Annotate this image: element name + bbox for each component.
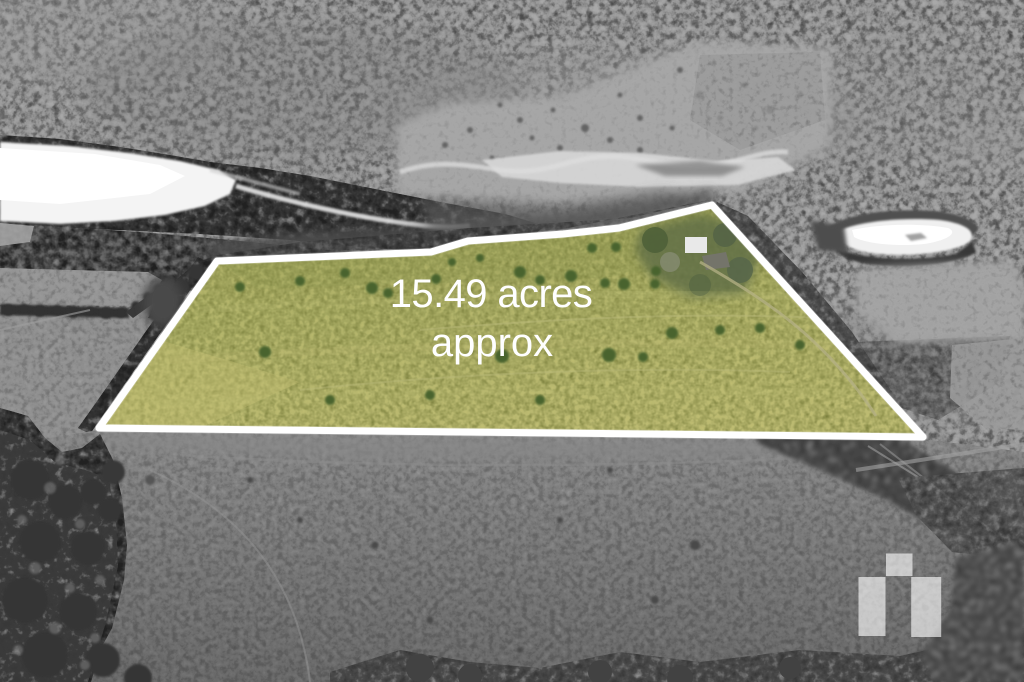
svg-text:15.49 acres: 15.49 acres (390, 272, 592, 316)
svg-text:approx: approx (431, 321, 553, 365)
